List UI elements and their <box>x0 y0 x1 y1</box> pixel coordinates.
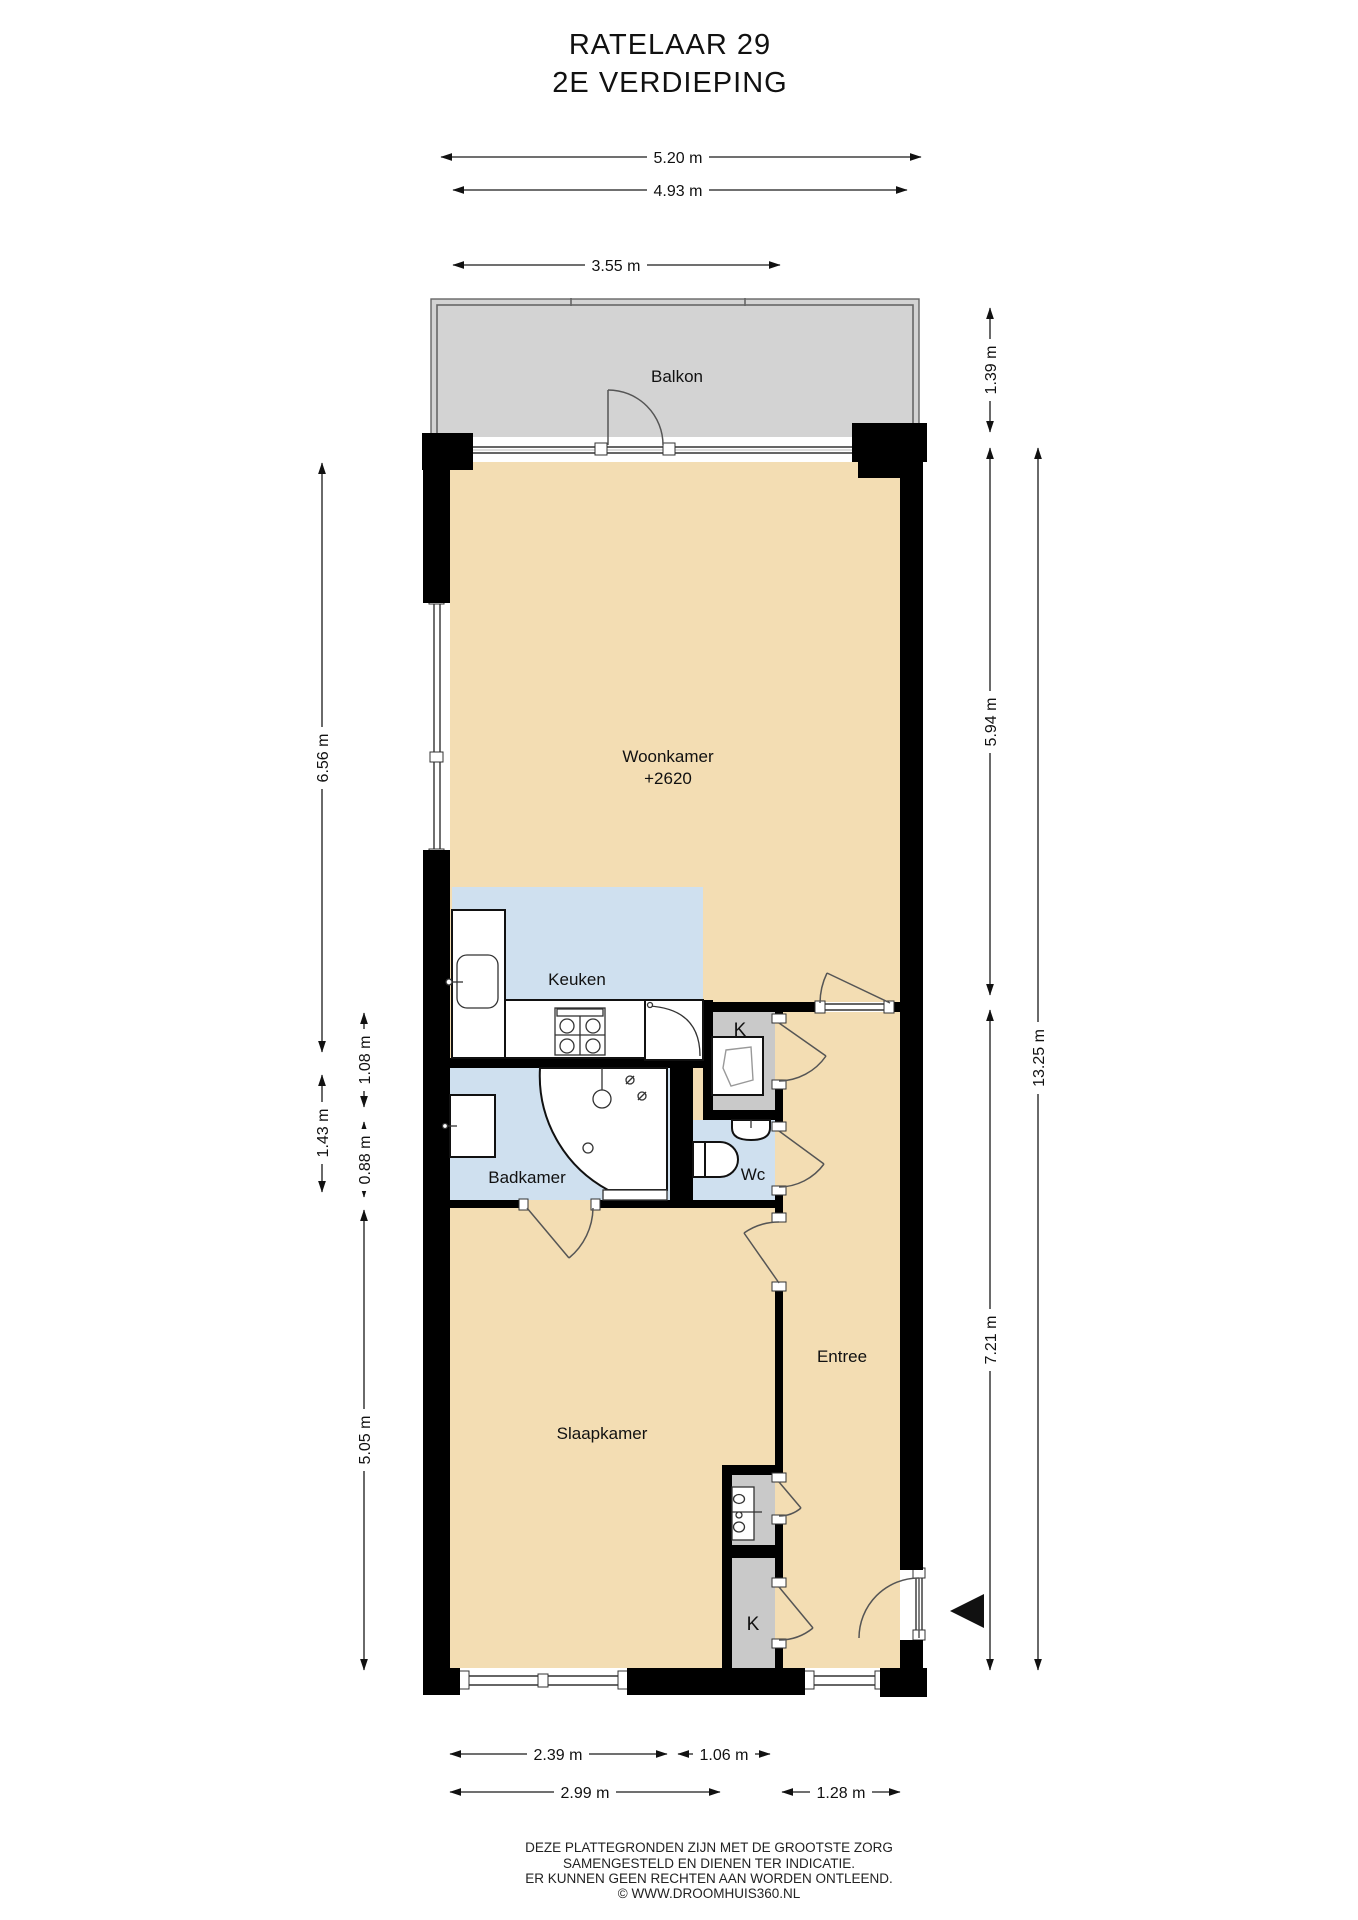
wall-slaapkamer-top-left <box>423 1200 527 1208</box>
hall-window-jamb-left <box>804 1671 814 1689</box>
wall-bottom-middle <box>627 1668 805 1695</box>
balcony-door-jamb-right <box>663 443 675 455</box>
disclaimer: DEZE PLATTEGRONDEN ZIJN MET DE GROOTSTE … <box>525 1840 893 1901</box>
dim-left-2: 1.43 m <box>313 1075 332 1192</box>
dim-top-1: 5.20 m <box>441 148 921 167</box>
svg-text:1.08 m: 1.08 m <box>357 1036 374 1085</box>
room-label-slaapkamer: Slaapkamer <box>557 1424 648 1443</box>
svg-text:0.88 m: 0.88 m <box>357 1136 374 1185</box>
disclaimer-line-1: DEZE PLATTEGRONDEN ZIJN MET DE GROOTSTE … <box>525 1840 893 1855</box>
kitchen-appliance <box>645 1000 703 1060</box>
wall-closet-bottom-left <box>722 1465 732 1668</box>
room-label-balkon: Balkon <box>651 367 703 386</box>
dim-bottom-2: 1.06 m <box>678 1745 770 1764</box>
svg-text:1.39 m: 1.39 m <box>983 346 1000 395</box>
svg-text:2.39 m: 2.39 m <box>534 1747 583 1764</box>
wall-corner-bottom-left <box>423 1668 460 1695</box>
dim-right-2: 5.94 m <box>981 448 1000 995</box>
left-window-mullion <box>430 752 443 762</box>
dim-left-5: 5.05 m <box>355 1210 374 1670</box>
wall-left-lower <box>423 850 450 1695</box>
wall-corner-top-right-step <box>858 462 900 478</box>
stove-icon <box>555 1008 605 1055</box>
dim-bottom-3: 2.99 m <box>450 1783 720 1802</box>
svg-text:6.56 m: 6.56 m <box>315 734 332 783</box>
wall-woonkamer-entree <box>703 1002 820 1012</box>
bedroom-window-jamb-left <box>459 1671 469 1689</box>
closet-bottom-floor <box>732 1558 775 1668</box>
svg-text:1.28 m: 1.28 m <box>817 1785 866 1802</box>
floorplan-drawing: RATELAAR 29 2E VERDIEPING Balkon <box>0 0 1358 1920</box>
svg-text:7.21 m: 7.21 m <box>983 1316 1000 1365</box>
floorplan-page: RATELAAR 29 2E VERDIEPING Balkon <box>0 0 1358 1920</box>
wall-left-upper <box>423 433 450 603</box>
disclaimer-line-2: SAMENGESTELD EN DIENEN TER INDICATIE. <box>563 1856 855 1871</box>
shower-step <box>603 1190 667 1200</box>
svg-text:5.20 m: 5.20 m <box>654 150 703 167</box>
svg-text:1.06 m: 1.06 m <box>700 1747 749 1764</box>
dim-top-2: 4.93 m <box>453 181 907 200</box>
dim-left-1: 6.56 m <box>313 463 332 1052</box>
wall-slaapkamer-top-right <box>593 1200 783 1208</box>
dim-top-3: 3.55 m <box>453 256 780 275</box>
wall-badkamer-wc <box>670 1068 693 1200</box>
wall-corner-bottom-right <box>880 1668 927 1697</box>
wall-wc-top <box>703 1110 783 1120</box>
wall-closet-divider <box>732 1545 783 1558</box>
svg-text:4.93 m: 4.93 m <box>654 183 703 200</box>
room-label-badkamer: Badkamer <box>488 1168 566 1187</box>
disclaimer-copyright: © WWW.DROOMHUIS360.NL <box>618 1886 801 1901</box>
dim-bottom-4: 1.28 m <box>782 1783 900 1802</box>
bedroom-window-mullion <box>538 1674 548 1687</box>
bedroom-window-jamb-right <box>618 1671 628 1689</box>
dim-right-1: 1.39 m <box>981 308 1000 432</box>
svg-text:2.99 m: 2.99 m <box>561 1785 610 1802</box>
dim-left-3: 1.08 m <box>355 1013 374 1107</box>
balcony-door-jamb-left <box>595 443 607 455</box>
svg-text:1.43 m: 1.43 m <box>315 1109 332 1158</box>
svg-text:3.55 m: 3.55 m <box>592 258 641 275</box>
dim-right-3: 13.25 m <box>1029 448 1048 1670</box>
dim-right-4: 7.21 m <box>981 1010 1000 1670</box>
title-line-1: RATELAAR 29 <box>569 29 771 61</box>
svg-text:5.94 m: 5.94 m <box>983 698 1000 747</box>
dim-left-4: 0.88 m <box>355 1122 374 1197</box>
room-label-closet-bottom: K <box>747 1614 760 1635</box>
svg-text:5.05 m: 5.05 m <box>357 1416 374 1465</box>
room-label-wc: Wc <box>741 1165 766 1184</box>
disclaimer-line-3: ER KUNNEN GEEN RECHTEN AAN WORDEN ONTLEE… <box>525 1871 893 1886</box>
closet-top-boiler <box>712 1037 763 1095</box>
entrance-arrow-icon <box>950 1594 984 1628</box>
room-label-woonkamer-level: +2620 <box>644 769 692 788</box>
svg-text:13.25 m: 13.25 m <box>1031 1029 1048 1087</box>
plan-title: RATELAAR 29 2E VERDIEPING <box>552 29 787 99</box>
dim-bottom-1: 2.39 m <box>450 1745 667 1764</box>
title-line-2: 2E VERDIEPING <box>552 67 787 99</box>
wall-right-upper <box>900 423 923 1570</box>
balcony: Balkon <box>431 298 919 439</box>
room-label-woonkamer: Woonkamer <box>622 747 714 766</box>
room-label-closet-top: K <box>734 1020 747 1041</box>
wall-right-lower <box>900 1640 923 1668</box>
toilet-icon <box>693 1142 738 1177</box>
room-label-keuken: Keuken <box>548 970 606 989</box>
room-label-entree: Entree <box>817 1347 867 1366</box>
